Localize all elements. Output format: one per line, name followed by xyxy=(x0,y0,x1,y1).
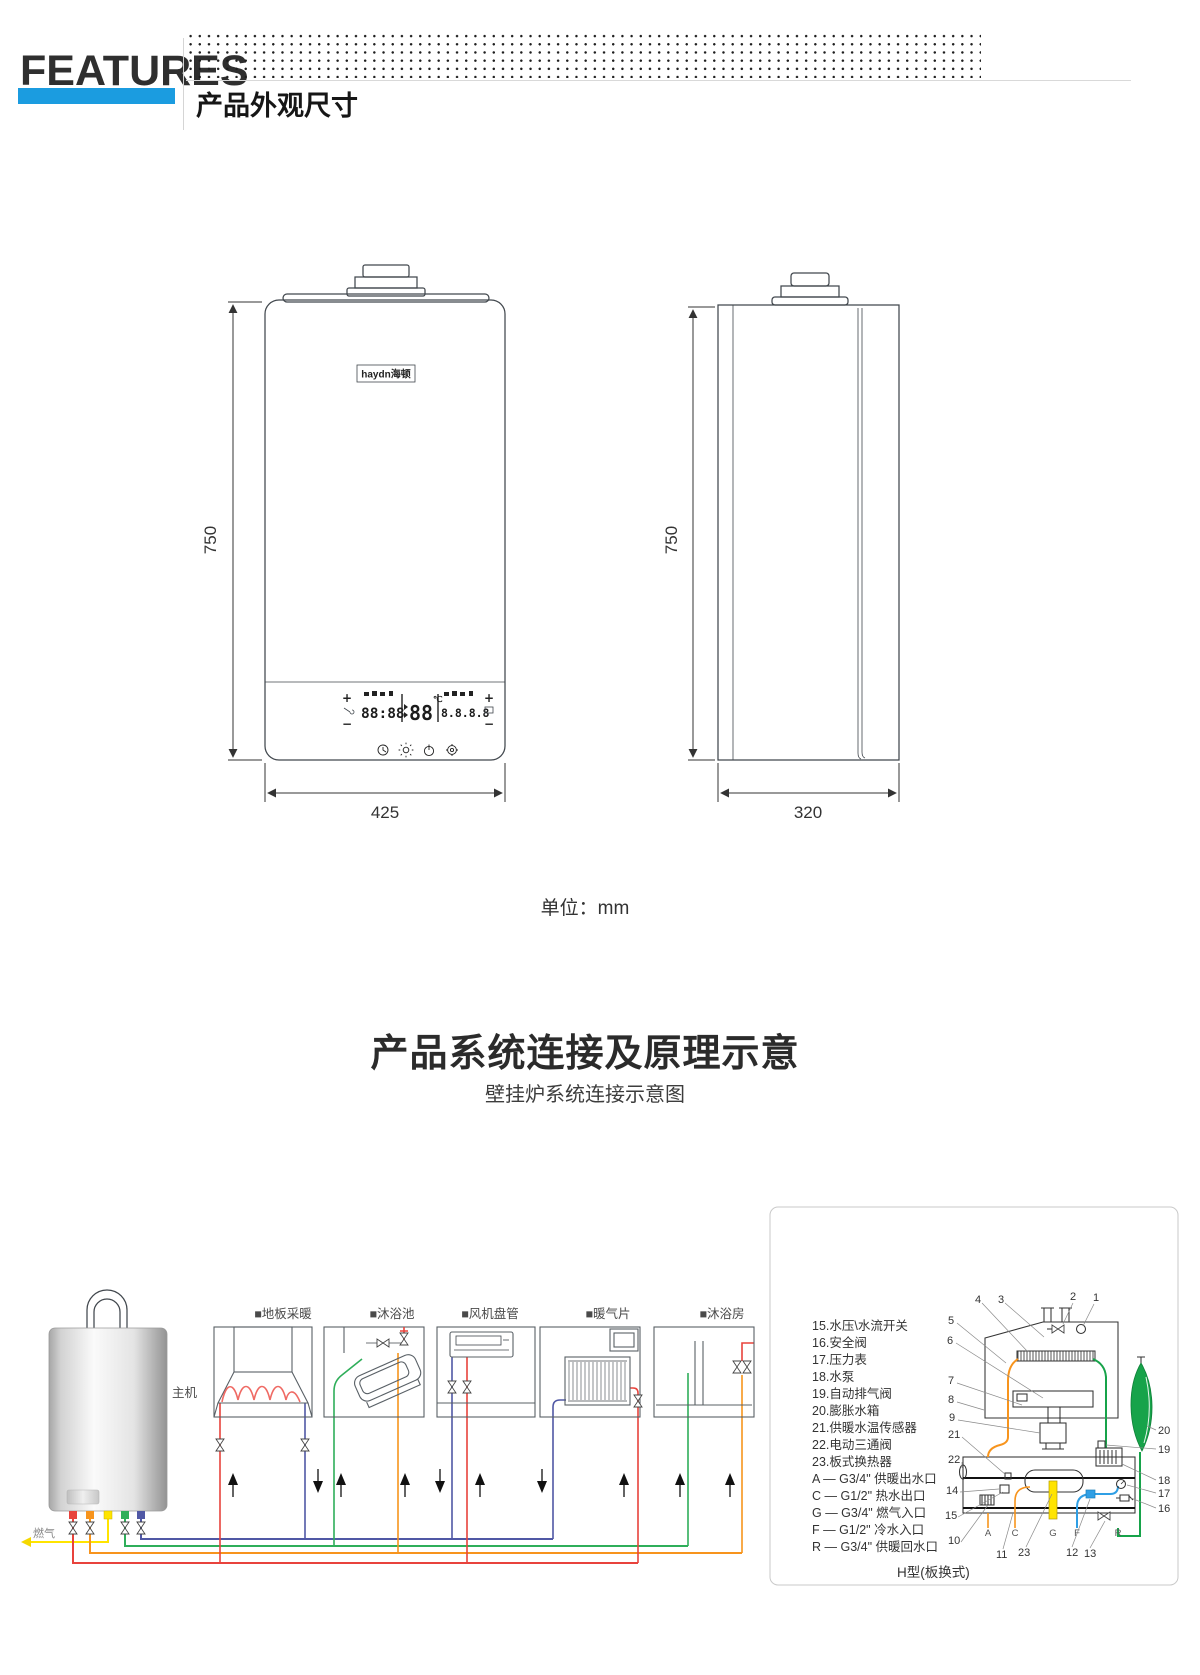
svg-text:13: 13 xyxy=(1084,1548,1096,1560)
parts-item: 19.自动排气阀 xyxy=(812,1386,892,1401)
flow-up-arrow xyxy=(400,1473,410,1497)
svg-text:G: G xyxy=(1049,1528,1056,1539)
svg-text:21: 21 xyxy=(948,1429,960,1441)
parts-item: R — G3/4" 供暖回水口 xyxy=(812,1540,938,1554)
flow-up-arrow xyxy=(336,1473,346,1497)
side-flue-mid xyxy=(781,286,839,297)
parts-item: 18.水泵 xyxy=(812,1370,854,1384)
left-plus-button[interactable]: + xyxy=(342,691,352,705)
flow-up-arrow xyxy=(725,1473,735,1497)
control-panel: + − 88:88 88 ℃ 8.8.8.8 + − xyxy=(342,691,494,757)
svg-text:6: 6 xyxy=(947,1335,953,1347)
wrench-icon xyxy=(344,708,354,714)
appliance-label: ■风机盘管 xyxy=(461,1306,519,1321)
svg-text:A: A xyxy=(985,1528,992,1539)
parts-item: 16.安全阀 xyxy=(812,1335,867,1350)
appliance-label: ■沐浴池 xyxy=(369,1307,415,1321)
gas-arrow xyxy=(21,1537,31,1547)
valve-icon xyxy=(69,1522,77,1534)
appliance-shower-room: ■沐浴房 xyxy=(654,1306,754,1497)
valve-icon xyxy=(448,1381,456,1393)
lcd-status-icons xyxy=(364,691,473,696)
door-seam xyxy=(858,308,865,759)
component-12 xyxy=(1086,1490,1095,1498)
section-title: 产品外观尺寸 xyxy=(196,84,358,123)
svg-text:20: 20 xyxy=(1158,1425,1170,1437)
valve-icon xyxy=(137,1522,145,1534)
gear-icon[interactable] xyxy=(446,744,458,756)
heat-exchanger xyxy=(1017,1351,1095,1361)
svg-text:R: R xyxy=(1115,1528,1122,1539)
right-plus-button[interactable]: + xyxy=(484,691,494,705)
svg-text:14: 14 xyxy=(946,1485,958,1497)
parts-item: G — G3/4" 燃气入口 xyxy=(812,1505,926,1520)
valve-icon xyxy=(86,1522,94,1534)
svg-text:22: 22 xyxy=(948,1454,960,1466)
system-diagram: 主机 燃气 ■地板采暖 xyxy=(0,1195,1200,1615)
side-body xyxy=(718,305,899,760)
system-title: 产品系统连接及原理示意 xyxy=(0,1022,1170,1077)
flue-loop-inner xyxy=(94,1299,120,1328)
valve-icon xyxy=(743,1361,751,1373)
svg-text:10: 10 xyxy=(948,1535,960,1547)
touch-icons xyxy=(378,743,458,758)
power-icon[interactable] xyxy=(424,745,433,756)
parts-item: 23.板式换热器 xyxy=(812,1455,892,1469)
parts-item: 15.水压\水流开关 xyxy=(812,1319,908,1333)
flow-down-arrow xyxy=(313,1469,323,1493)
side-width-label: 320 xyxy=(794,803,822,822)
front-view: haydn海顿 + − 88:88 88 ℃ 8.8.8.8 xyxy=(201,265,505,822)
radiator xyxy=(565,1357,630,1405)
boiler-display xyxy=(67,1490,99,1504)
boiler-body xyxy=(49,1328,167,1511)
flow-up-arrow xyxy=(675,1473,685,1497)
svg-text:11: 11 xyxy=(996,1549,1007,1561)
schematic-caption: H型(板换式) xyxy=(897,1565,970,1580)
right-minus-button[interactable]: − xyxy=(484,717,494,731)
front-width-label: 425 xyxy=(371,803,399,822)
flow-down-arrow xyxy=(435,1469,445,1493)
side-height-label: 750 xyxy=(662,526,681,554)
side-dimensions: 750 320 xyxy=(662,307,899,822)
svg-text:17: 17 xyxy=(1158,1488,1170,1500)
front-dimensions: 750 425 xyxy=(201,302,505,822)
valve-icon xyxy=(733,1361,741,1373)
flue-loop-outer xyxy=(87,1290,127,1328)
appliance-bathtub: ■沐浴池 xyxy=(324,1307,426,1497)
flow-up-arrow xyxy=(228,1473,238,1497)
outline-drawing: haydn海顿 + − 88:88 88 ℃ 8.8.8.8 xyxy=(0,250,1200,850)
lcd-left-value: 88:88 xyxy=(361,706,405,722)
front-height-label: 750 xyxy=(201,526,220,554)
valve-icon xyxy=(216,1439,224,1451)
parts-item: 21.供暖水温传感器 xyxy=(812,1420,917,1435)
svg-text:16: 16 xyxy=(1158,1503,1170,1515)
svg-text:1: 1 xyxy=(1093,1292,1099,1304)
gas-label: 燃气 xyxy=(33,1526,55,1540)
return-bus xyxy=(141,1511,553,1539)
riser-red-radiator xyxy=(630,1388,638,1563)
svg-text:3: 3 xyxy=(998,1294,1004,1306)
svg-text:15: 15 xyxy=(945,1510,957,1522)
valve-icon xyxy=(121,1522,129,1534)
svg-text:C: C xyxy=(1012,1528,1019,1539)
svg-text:9: 9 xyxy=(949,1412,955,1424)
riser-green-bath xyxy=(334,1359,362,1546)
svg-text:19: 19 xyxy=(1158,1444,1170,1456)
main-unit-label: 主机 xyxy=(172,1386,198,1400)
header-divider xyxy=(183,38,184,130)
riser-navy-radiator xyxy=(553,1400,566,1539)
svg-text:12: 12 xyxy=(1066,1547,1078,1559)
parts-item: F — G1/2" 冷水入口 xyxy=(812,1523,924,1537)
flow-down-arrow xyxy=(537,1469,547,1493)
flue-flange xyxy=(347,288,425,296)
appliance-label: ■沐浴房 xyxy=(699,1306,744,1321)
svg-text:23: 23 xyxy=(1018,1547,1030,1559)
manual-page: FEATURES 产品外观尺寸 haydn海顿 + − xyxy=(0,0,1200,1675)
valve-icon xyxy=(634,1395,642,1407)
svg-text:4: 4 xyxy=(975,1294,981,1306)
brand-logo: haydn海顿 xyxy=(361,368,410,381)
flow-up-arrow xyxy=(475,1473,485,1497)
features-header: FEATURES xyxy=(20,50,180,108)
appliance-fan-coil: ■风机盘管 xyxy=(435,1306,535,1497)
side-flue-top xyxy=(791,273,829,286)
dot-pattern xyxy=(186,32,981,78)
valve-icon xyxy=(463,1381,471,1393)
flue-mid xyxy=(355,277,417,288)
svg-text:8: 8 xyxy=(948,1394,954,1406)
flow-up-arrow xyxy=(619,1473,629,1497)
port-stubs xyxy=(69,1511,145,1519)
valve-icon xyxy=(301,1439,309,1451)
main-unit: 主机 燃气 xyxy=(33,1290,198,1540)
svg-text:2: 2 xyxy=(1070,1291,1076,1303)
clock-icon[interactable] xyxy=(378,745,388,755)
appliance-label: ■暖气片 xyxy=(585,1306,630,1321)
parts-item: A — G3/4" 供暖出水口 xyxy=(812,1472,937,1486)
sun-icon[interactable] xyxy=(399,743,414,758)
header-rule xyxy=(186,80,1131,81)
lcd-center-value: 88 xyxy=(409,701,433,725)
bathtub xyxy=(352,1352,426,1409)
gas-column xyxy=(1049,1481,1057,1519)
svg-text:18: 18 xyxy=(1158,1475,1170,1487)
parts-item: 20.膨胀水箱 xyxy=(812,1403,879,1418)
flue-top xyxy=(363,265,409,277)
side-view: 750 320 xyxy=(662,273,899,822)
parts-item: C — G1/2" 热水出口 xyxy=(812,1489,925,1503)
svg-text:5: 5 xyxy=(948,1315,954,1327)
appliance-label: ■地板采暖 xyxy=(254,1307,312,1321)
unit-note: 单位：mm xyxy=(0,893,1170,920)
floor-coil xyxy=(222,1387,300,1403)
left-minus-button[interactable]: − xyxy=(342,717,352,731)
parts-item: 17.压力表 xyxy=(812,1353,867,1367)
shower-red-stub xyxy=(742,1343,754,1361)
lcd-right-value: 8.8.8.8 xyxy=(441,706,490,720)
appliance-floor-heating: ■地板采暖 xyxy=(214,1307,323,1497)
system-subtitle: 壁挂炉系统连接示意图 xyxy=(0,1078,1170,1107)
valve-icon xyxy=(377,1339,389,1347)
svg-text:7: 7 xyxy=(948,1375,954,1387)
cold-bus xyxy=(125,1511,688,1546)
side-flue-flange xyxy=(772,297,848,305)
valve-icon xyxy=(400,1333,408,1345)
parts-item: 22.电动三通阀 xyxy=(812,1438,892,1452)
top-plate xyxy=(283,294,489,302)
schematic-panel: 15.水压\水流开关 16.安全阀 17.压力表 18.水泵 19.自动排气阀 … xyxy=(770,1207,1178,1585)
